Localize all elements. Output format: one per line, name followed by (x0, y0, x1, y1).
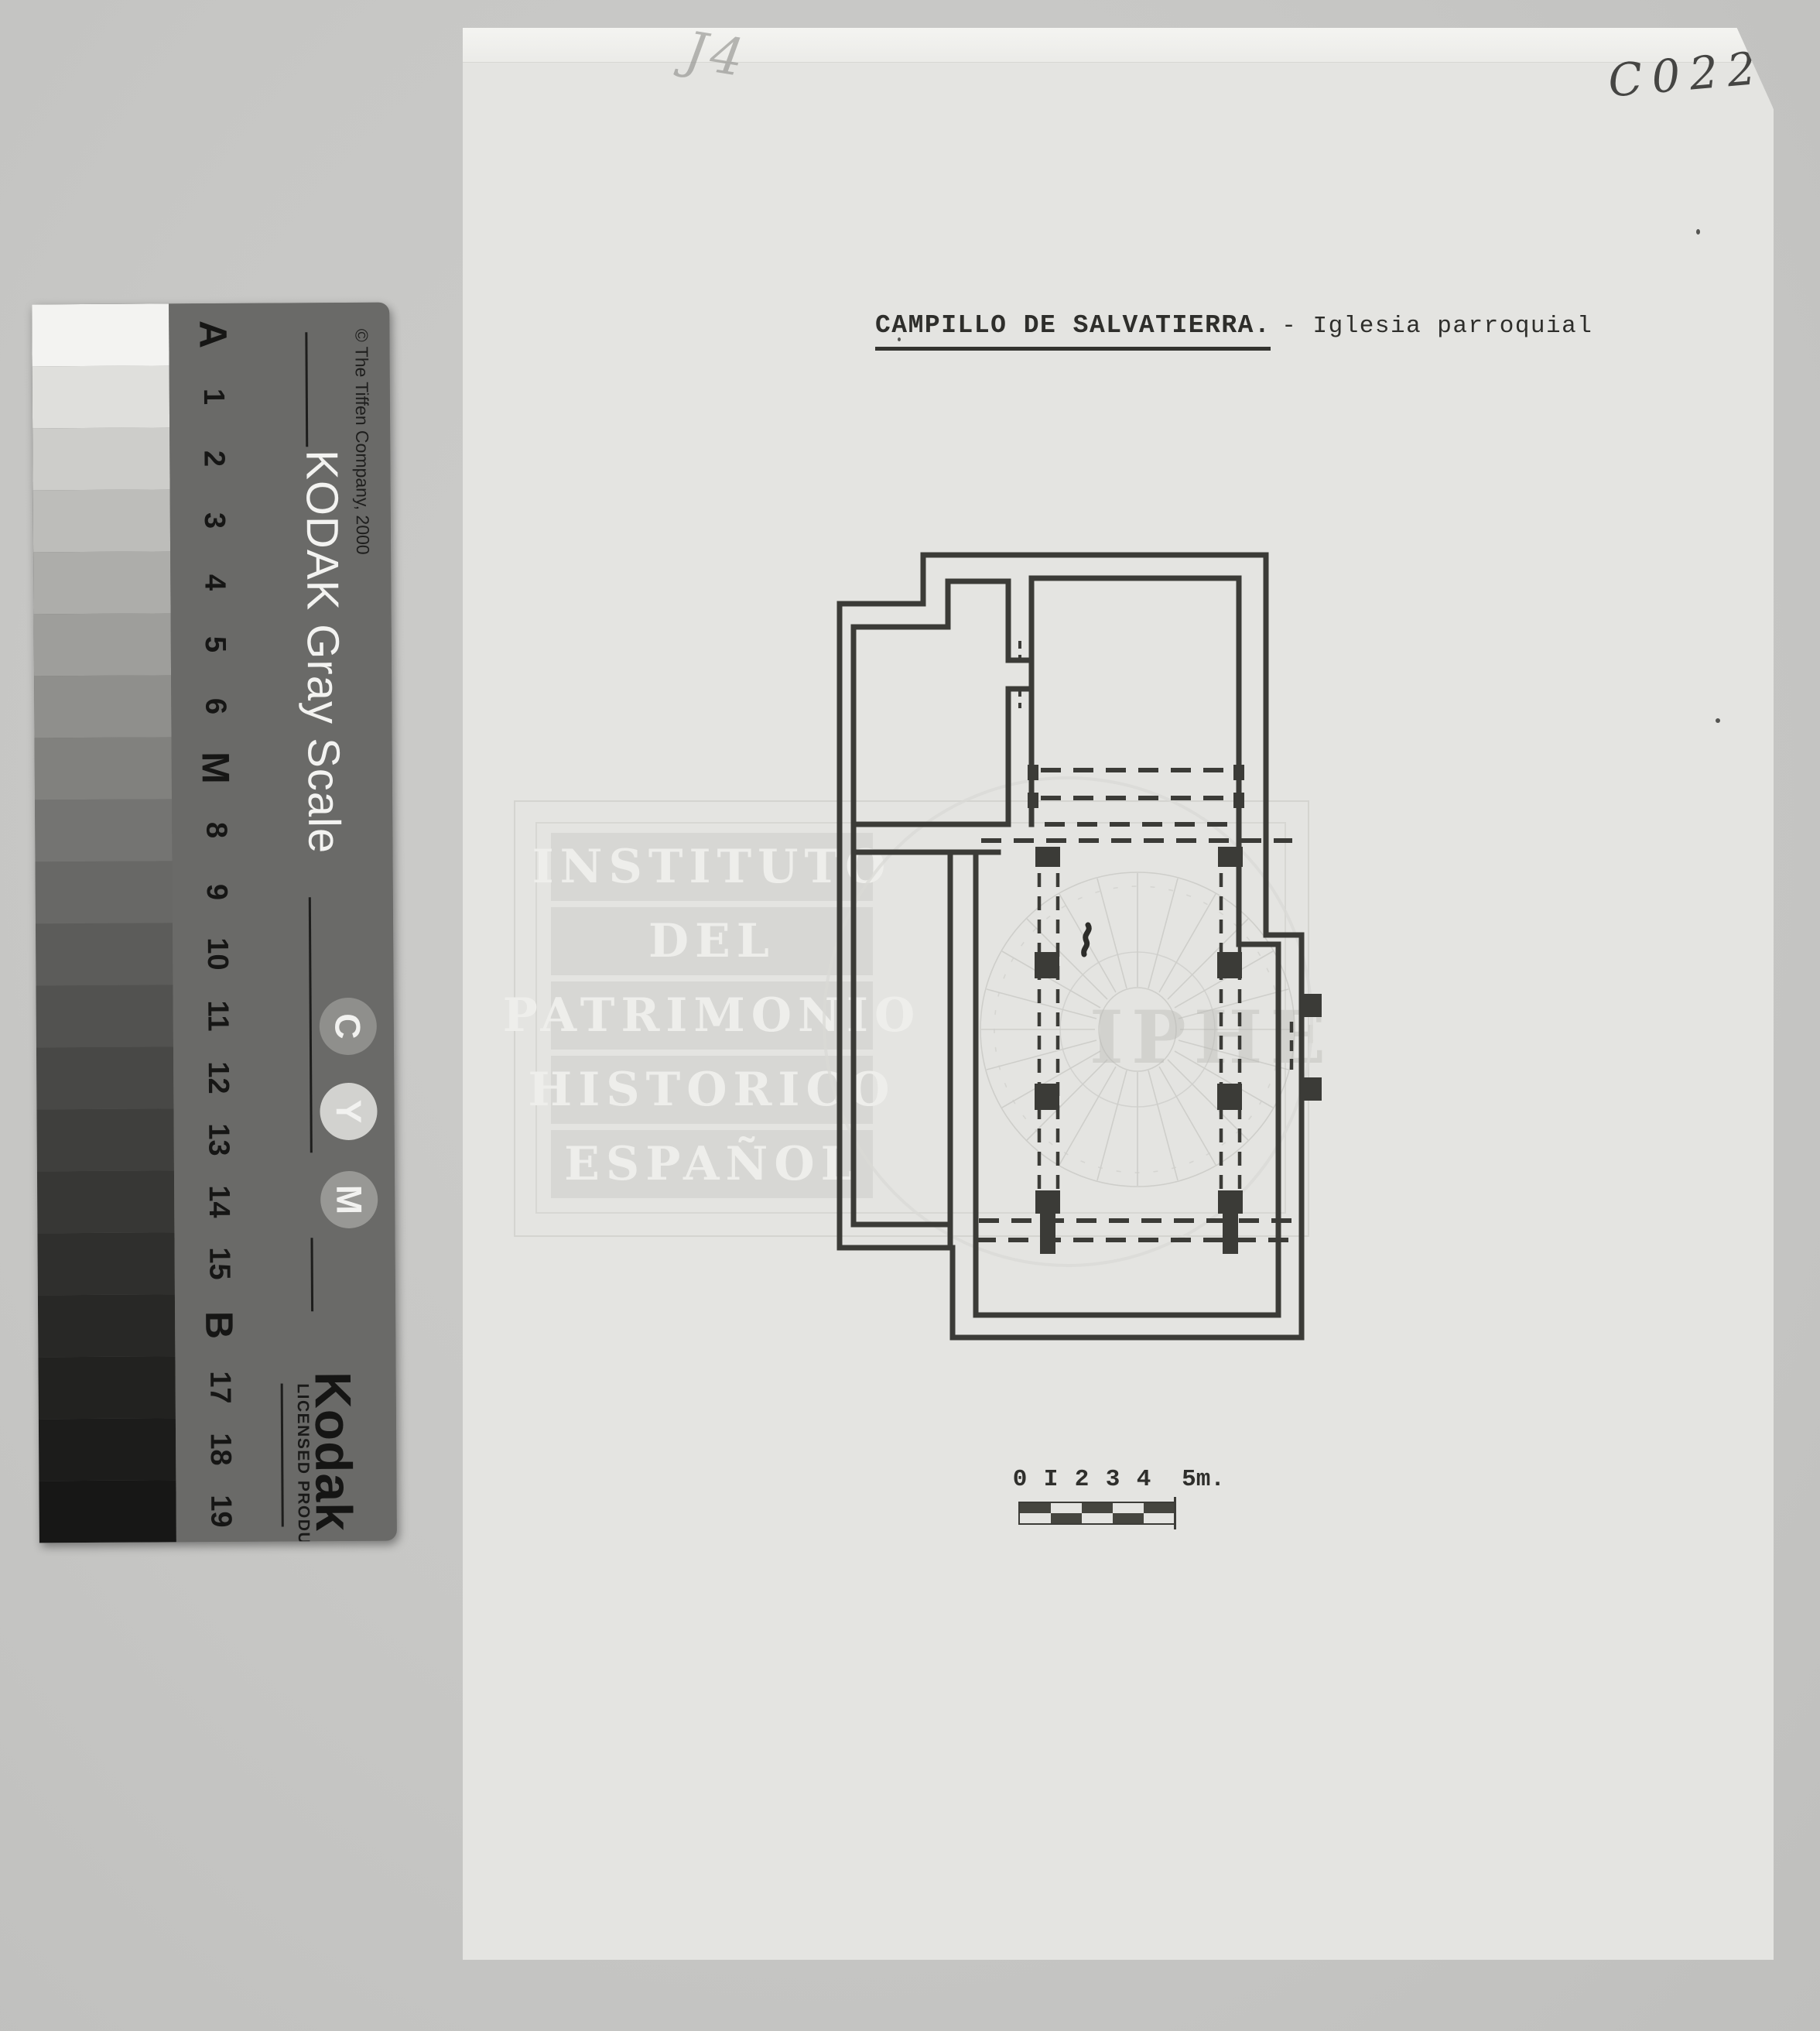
step-label: 18 (186, 1418, 253, 1481)
licensed-product-label: LICENSED PRODUCT (293, 1383, 313, 1543)
gray-patch (39, 1418, 176, 1481)
scale-segment (1082, 1513, 1113, 1523)
step-label: B (186, 1294, 252, 1357)
scale-segment (1113, 1503, 1144, 1513)
divider-rule (305, 332, 308, 447)
scale-tick-label: I (1034, 1466, 1068, 1493)
step-label: 9 (183, 861, 250, 923)
yellow-patch-circle: Y (320, 1083, 377, 1140)
step-label: 17 (186, 1356, 252, 1419)
gray-patch (33, 489, 170, 552)
gray-patch-column (32, 303, 176, 1543)
step-label: 2 (180, 427, 247, 490)
gray-patch (36, 985, 173, 1047)
ink-blemish (1084, 925, 1090, 954)
title-building-name: - Iglesia parroquial (1281, 313, 1592, 340)
gray-patch (38, 1294, 175, 1357)
divider-rule (310, 1238, 313, 1311)
scale-segment (1113, 1513, 1144, 1523)
scale-segment (1020, 1513, 1051, 1523)
gray-patch (37, 1170, 174, 1233)
gray-patch (36, 1108, 173, 1171)
step-label: 4 (181, 551, 248, 614)
step-label: 10 (183, 923, 250, 985)
gray-patch (39, 1480, 176, 1543)
scale-unit-label: 5m. (1168, 1466, 1238, 1493)
gray-patch (32, 303, 169, 366)
step-label: 1 (180, 365, 247, 428)
paper-edge-highlight (463, 28, 1774, 63)
kodak-gray-scale-strip: A 1 2 3 4 5 6 M 8 9 10 11 12 13 14 15 B … (32, 303, 397, 1543)
gray-patch (38, 1356, 175, 1419)
step-label: 11 (183, 985, 250, 1047)
scale-segment (1051, 1513, 1082, 1523)
dust-speck (898, 337, 901, 341)
gray-patch (36, 1046, 173, 1109)
dust-speck (1696, 229, 1700, 235)
gray-patch (33, 551, 170, 614)
step-label: 8 (183, 799, 249, 861)
gray-patch (36, 923, 173, 985)
divider-rule (281, 1383, 284, 1526)
dust-speck (1716, 718, 1720, 723)
scale-tick-label: 2 (1065, 1466, 1099, 1493)
scale-tick-label: 3 (1096, 1466, 1130, 1493)
gray-patch (34, 613, 171, 676)
gray-patch (32, 427, 169, 490)
scale-end-tick (1174, 1497, 1176, 1529)
step-label: 3 (181, 489, 248, 552)
scale-tick-label: 4 (1127, 1466, 1161, 1493)
gray-scale-label-band: A 1 2 3 4 5 6 M 8 9 10 11 12 13 14 15 B … (169, 303, 397, 1543)
step-label: A (180, 303, 246, 366)
step-label: M (183, 737, 249, 800)
magenta-patch-circle: M (320, 1171, 378, 1228)
step-label: 6 (182, 675, 248, 738)
step-label: 14 (185, 1170, 251, 1233)
drawing-title: CAMPILLO DE SALVATIERRA.- Iglesia parroq… (875, 311, 1592, 340)
step-label: 12 (184, 1046, 251, 1109)
scale-segment (1051, 1503, 1082, 1513)
floor-plan-drawing (789, 534, 1346, 1370)
gray-patch (34, 675, 171, 738)
scale-segment (1144, 1503, 1175, 1513)
cyan-patch-circle: C (320, 998, 377, 1055)
kodak-logo: Kodak (304, 1372, 364, 1532)
tiffen-copyright: © The Tiffen Company, 2000 (351, 329, 373, 555)
graphic-scale-bar (1020, 1503, 1175, 1523)
kodak-gray-scale-title: KODAK Gray Scale (296, 450, 350, 854)
scale-segment (1082, 1503, 1113, 1513)
drawing-sheet: J4 C022 CAMPILLO DE SALVATIERRA.- Iglesi… (463, 28, 1774, 1960)
scale-tick-label: 0 (1003, 1466, 1037, 1493)
scanned-archive-photo: A 1 2 3 4 5 6 M 8 9 10 11 12 13 14 15 B … (0, 0, 1820, 2031)
gray-patch (35, 737, 172, 800)
scale-segment (1020, 1503, 1051, 1513)
gray-patch (36, 861, 173, 923)
gray-patch (35, 799, 172, 861)
title-place-name: CAMPILLO DE SALVATIERRA. (875, 311, 1271, 351)
pencil-annotation: J4 (681, 20, 752, 89)
gray-patch (32, 365, 169, 428)
step-label: 19 (186, 1480, 253, 1543)
gray-patch (37, 1232, 174, 1295)
step-label: 15 (185, 1232, 251, 1295)
step-label: 5 (182, 613, 248, 676)
dome-ceiling-tracery (980, 872, 1295, 1187)
scale-segment (1144, 1513, 1175, 1523)
divider-rule (309, 897, 313, 1152)
step-label: 13 (184, 1108, 251, 1171)
